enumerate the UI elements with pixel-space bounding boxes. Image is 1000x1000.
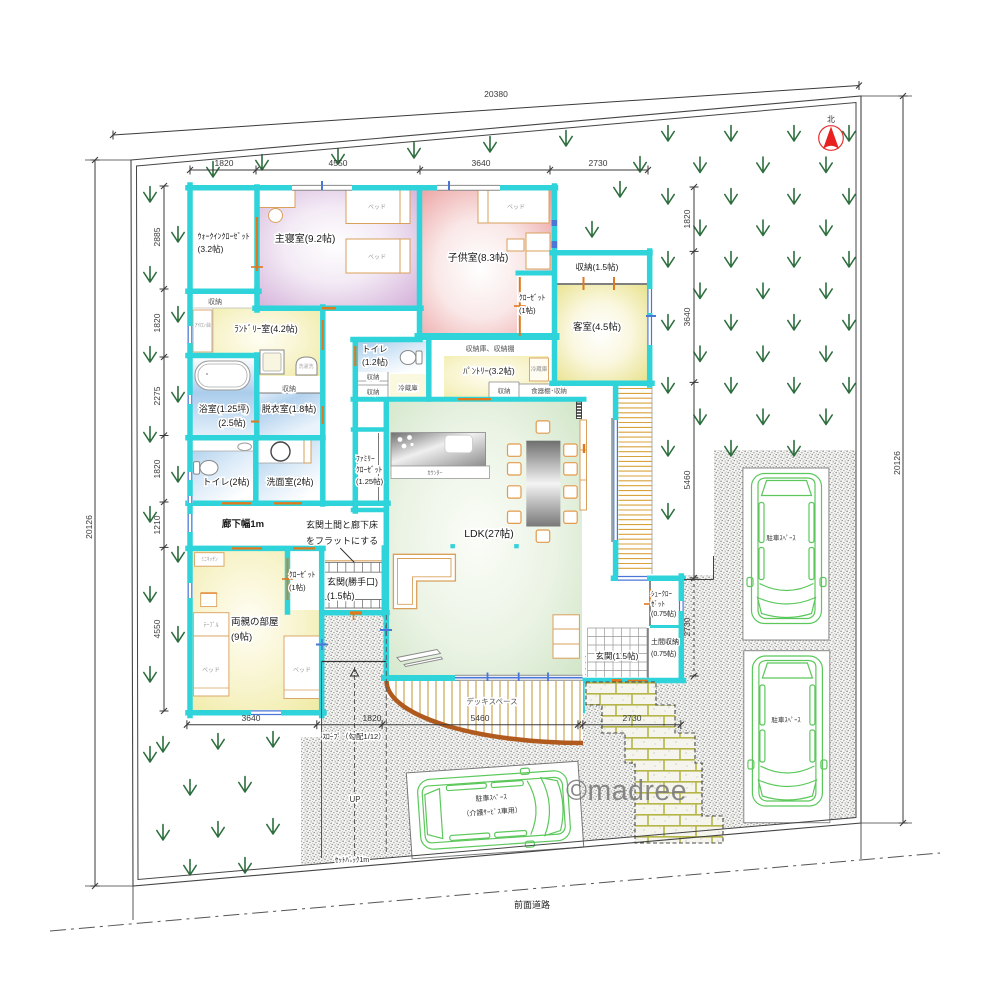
svg-text:冷蔵庫: 冷蔵庫 xyxy=(531,365,548,373)
svg-text:5460: 5460 xyxy=(682,470,692,489)
svg-text:子供室(8.3帖): 子供室(8.3帖) xyxy=(448,251,509,264)
svg-text:1820: 1820 xyxy=(152,313,162,332)
svg-text:ｶｳﾝﾀｰ: ｶｳﾝﾀｰ xyxy=(427,470,442,477)
svg-text:1820: 1820 xyxy=(682,209,692,228)
svg-text:2730: 2730 xyxy=(682,617,692,636)
svg-text:収納: 収納 xyxy=(282,384,296,393)
svg-text:客室(4.5帖): 客室(4.5帖) xyxy=(573,321,621,333)
svg-text:玄関(勝手口): 玄関(勝手口) xyxy=(327,576,378,587)
svg-text:3640: 3640 xyxy=(472,158,491,168)
svg-text:(9帖): (9帖) xyxy=(231,631,252,643)
svg-text:(1.5帖): (1.5帖) xyxy=(327,590,355,601)
svg-text:主寝室(9.2帖): 主寝室(9.2帖) xyxy=(275,232,336,245)
svg-text:ｾｯﾄﾊﾞｯｸ1m: ｾｯﾄﾊﾞｯｸ1m xyxy=(335,856,369,864)
svg-text:ｾﾞｯﾄ: ｾﾞｯﾄ xyxy=(651,600,665,608)
svg-text:20126: 20126 xyxy=(892,451,902,475)
svg-text:浴室(1.25坪): 浴室(1.25坪) xyxy=(199,403,250,414)
svg-text:(1.2帖): (1.2帖) xyxy=(362,357,388,367)
svg-text:トイレ(2帖): トイレ(2帖) xyxy=(203,476,250,487)
svg-text:ｸﾛｰｾﾞｯﾄ: ｸﾛｰｾﾞｯﾄ xyxy=(289,570,315,579)
svg-text:2275: 2275 xyxy=(152,386,162,405)
svg-text:5460: 5460 xyxy=(471,713,490,723)
svg-text:1820: 1820 xyxy=(215,158,234,168)
svg-text:トイレ: トイレ xyxy=(362,344,388,354)
svg-text:ベッド: ベッド xyxy=(202,667,220,674)
svg-text:ｳｫｰｸｲﾝｸﾛｰｾﾞｯﾄ: ｳｫｰｸｲﾝｸﾛｰｾﾞｯﾄ xyxy=(198,232,250,241)
svg-text:3640: 3640 xyxy=(682,307,692,326)
svg-text:脱衣室(1.8帖): 脱衣室(1.8帖) xyxy=(262,403,317,414)
svg-text:(0.75帖): (0.75帖) xyxy=(651,609,676,618)
svg-text:玄関土間と廊下床: 玄関土間と廊下床 xyxy=(306,519,378,530)
svg-text:洗濯洗: 洗濯洗 xyxy=(298,363,313,370)
svg-text:をフラットにする: をフラットにする xyxy=(306,536,378,546)
svg-text:3640: 3640 xyxy=(242,713,261,723)
svg-text:ｽﾛｰﾌﾟ（勾配1/12）: ｽﾛｰﾌﾟ（勾配1/12） xyxy=(322,731,385,741)
svg-text:駐車ｽﾍﾟｰｽ: 駐車ｽﾍﾟｰｽ xyxy=(771,715,801,724)
svg-text:駐車ｽﾍﾟｰｽ: 駐車ｽﾍﾟｰｽ xyxy=(766,533,796,542)
svg-text:ﾗﾝﾄﾞﾘｰ室(4.2帖): ﾗﾝﾄﾞﾘｰ室(4.2帖) xyxy=(234,323,298,334)
svg-text:収納庫、収納棚: 収納庫、収納棚 xyxy=(466,344,515,353)
svg-text:両親の部屋: 両親の部屋 xyxy=(231,616,279,628)
svg-text:ﾐﾆｷｯﾁﾝ: ﾐﾆｷｯﾁﾝ xyxy=(201,556,218,563)
svg-text:ベッド: ベッド xyxy=(293,667,311,674)
svg-text:廊下幅1m: 廊下幅1m xyxy=(222,518,264,530)
svg-text:1820: 1820 xyxy=(152,459,162,478)
svg-text:ベッド: ベッド xyxy=(368,204,386,211)
svg-text:収納(1.5帖): 収納(1.5帖) xyxy=(576,262,619,272)
svg-text:土間収納: 土間収納 xyxy=(651,637,679,646)
svg-text:20126: 20126 xyxy=(84,515,94,539)
svg-text:(1帖): (1帖) xyxy=(289,582,306,592)
svg-text:収納: 収納 xyxy=(367,372,380,381)
svg-text:LDK(27帖): LDK(27帖) xyxy=(464,527,514,540)
svg-text:(2.5帖): (2.5帖) xyxy=(218,417,246,428)
svg-text:前面道路: 前面道路 xyxy=(514,899,550,910)
svg-text:ﾌｧﾐﾘｰ: ﾌｧﾐﾘｰ xyxy=(356,454,375,463)
svg-text:洗面室(2帖): 洗面室(2帖) xyxy=(267,476,314,487)
svg-text:©madree: ©madree xyxy=(566,775,687,807)
svg-text:ﾃｰﾌﾞﾙ: ﾃｰﾌﾞﾙ xyxy=(203,622,218,629)
svg-text:1820: 1820 xyxy=(363,713,382,723)
svg-text:収納: 収納 xyxy=(498,386,511,395)
svg-text:(1.25帖): (1.25帖) xyxy=(356,476,384,486)
svg-text:デッキスペース: デッキスペース xyxy=(466,696,517,706)
svg-text:4550: 4550 xyxy=(152,619,162,638)
svg-text:収納: 収納 xyxy=(208,297,222,306)
svg-text:冷蔵庫: 冷蔵庫 xyxy=(398,383,418,392)
svg-text:北: 北 xyxy=(827,115,835,124)
svg-text:(0.75帖): (0.75帖) xyxy=(651,649,676,658)
svg-text:4550: 4550 xyxy=(329,158,348,168)
svg-text:玄関(1.5帖): 玄関(1.5帖) xyxy=(596,651,639,661)
svg-text:20380: 20380 xyxy=(484,89,508,99)
svg-text:ベッド: ベッド xyxy=(507,204,525,211)
svg-text:ｼｭｰｸﾛｰ: ｼｭｰｸﾛｰ xyxy=(651,590,672,598)
svg-text:2885: 2885 xyxy=(152,227,162,246)
svg-text:収納: 収納 xyxy=(367,387,380,396)
svg-text:ベッド: ベッド xyxy=(368,254,386,261)
svg-text:2730: 2730 xyxy=(623,713,642,723)
svg-text:食器棚･収納: 食器棚･収納 xyxy=(531,386,567,395)
svg-text:(1帖): (1帖) xyxy=(519,305,536,315)
svg-text:1210: 1210 xyxy=(152,515,162,534)
svg-text:(3.2帖): (3.2帖) xyxy=(198,244,224,254)
svg-text:UP: UP xyxy=(349,795,360,804)
svg-text:ﾊﾟﾝﾄﾘｰ(3.2帖): ﾊﾟﾝﾄﾘｰ(3.2帖) xyxy=(463,366,515,376)
svg-text:ｸﾛｰｾﾞｯﾄ: ｸﾛｰｾﾞｯﾄ xyxy=(519,293,545,302)
svg-text:ｱｲﾛﾝ台: ｱｲﾛﾝ台 xyxy=(195,321,212,329)
svg-text:ｸﾛｰｾﾞｯﾄ: ｸﾛｰｾﾞｯﾄ xyxy=(356,465,382,474)
svg-text:2730: 2730 xyxy=(589,158,608,168)
